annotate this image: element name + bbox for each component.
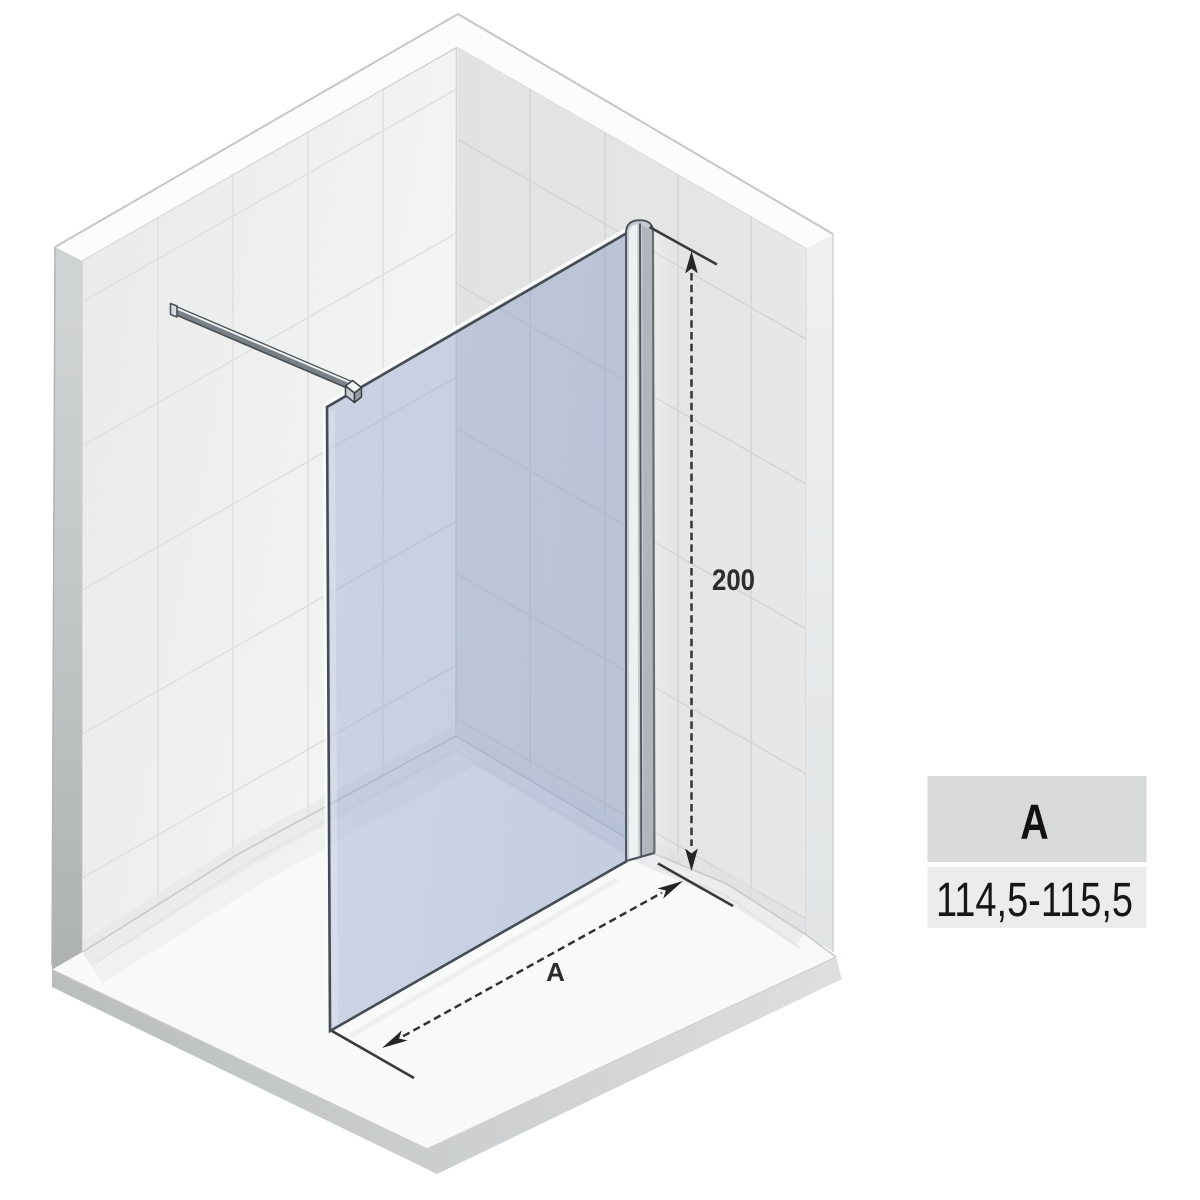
svg-text:A: A — [1020, 795, 1049, 850]
svg-text:A: A — [546, 957, 565, 987]
svg-text:114,5-115,5: 114,5-115,5 — [936, 874, 1133, 927]
svg-text:200: 200 — [712, 564, 755, 597]
